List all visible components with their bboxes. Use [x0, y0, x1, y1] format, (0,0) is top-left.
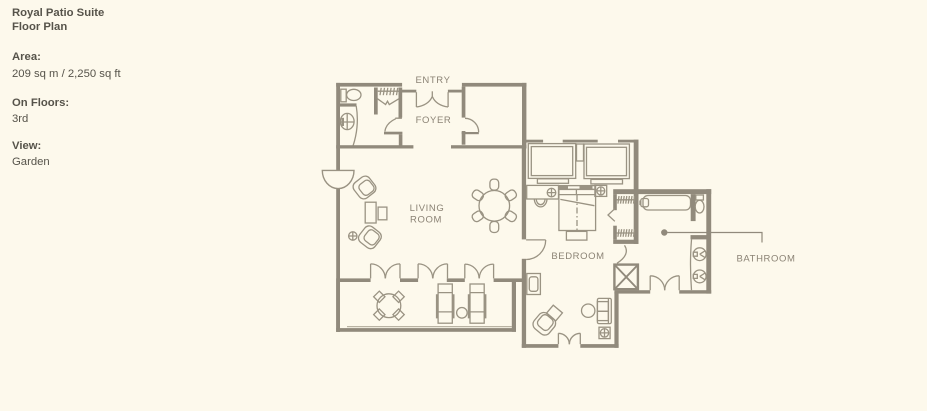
svg-text:Floor Plan: Floor Plan	[12, 21, 67, 33]
svg-text:ROOM: ROOM	[410, 215, 442, 226]
svg-text:209 sq m / 2,250 sq ft: 209 sq m / 2,250 sq ft	[12, 68, 122, 80]
svg-text:View:: View:	[12, 140, 41, 152]
svg-text:FOYER: FOYER	[416, 115, 452, 126]
svg-text:BEDROOM: BEDROOM	[551, 251, 604, 262]
svg-text:3rd: 3rd	[12, 113, 28, 125]
svg-text:Garden: Garden	[12, 156, 50, 168]
svg-text:ENTRY: ENTRY	[415, 75, 450, 86]
svg-text:Royal Patio Suite: Royal Patio Suite	[12, 7, 104, 19]
svg-text:BATHROOM: BATHROOM	[737, 254, 796, 265]
svg-text:LIVING: LIVING	[410, 203, 445, 214]
svg-text:Area:: Area:	[12, 51, 41, 63]
svg-text:On Floors:: On Floors:	[12, 97, 69, 109]
